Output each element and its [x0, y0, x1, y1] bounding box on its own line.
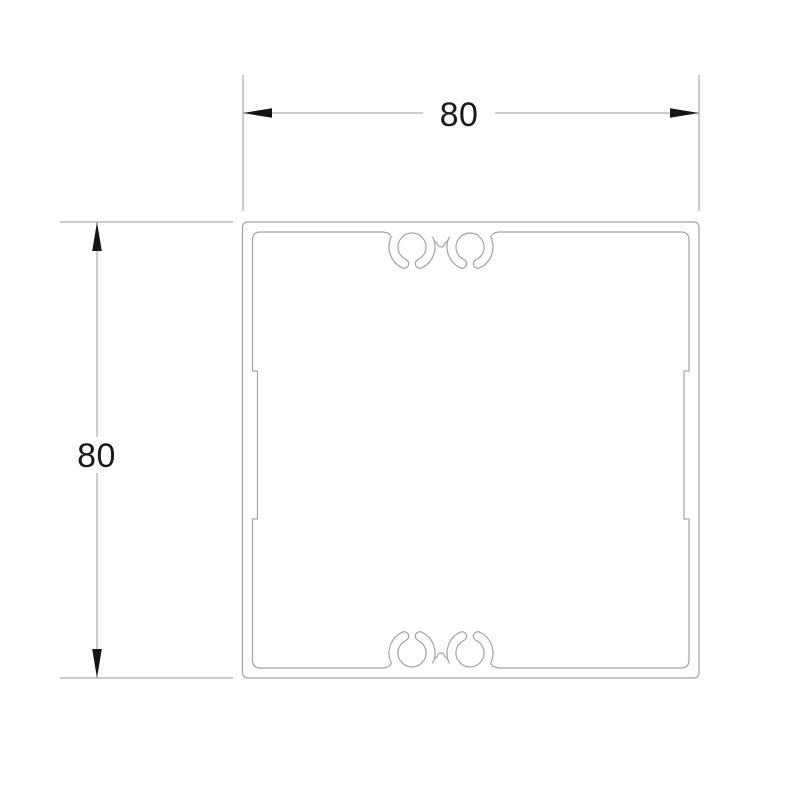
- width-dimension-value: 80: [440, 96, 479, 134]
- width-dimension: 80: [243, 75, 699, 211]
- width-arrow-left-icon: [243, 108, 272, 118]
- profile-cross-section: [243, 222, 700, 678]
- height-arrow-bottom-icon: [92, 649, 102, 678]
- profile-inner-contour: [253, 232, 690, 668]
- height-dimension-value: 80: [77, 437, 116, 475]
- profile-outer-contour: [243, 222, 700, 678]
- drawing-canvas: 80 80: [0, 0, 800, 800]
- technical-drawing: 80 80: [0, 0, 800, 800]
- height-arrow-top-icon: [92, 222, 102, 251]
- width-arrow-right-icon: [670, 108, 699, 118]
- height-dimension: 80: [60, 222, 233, 678]
